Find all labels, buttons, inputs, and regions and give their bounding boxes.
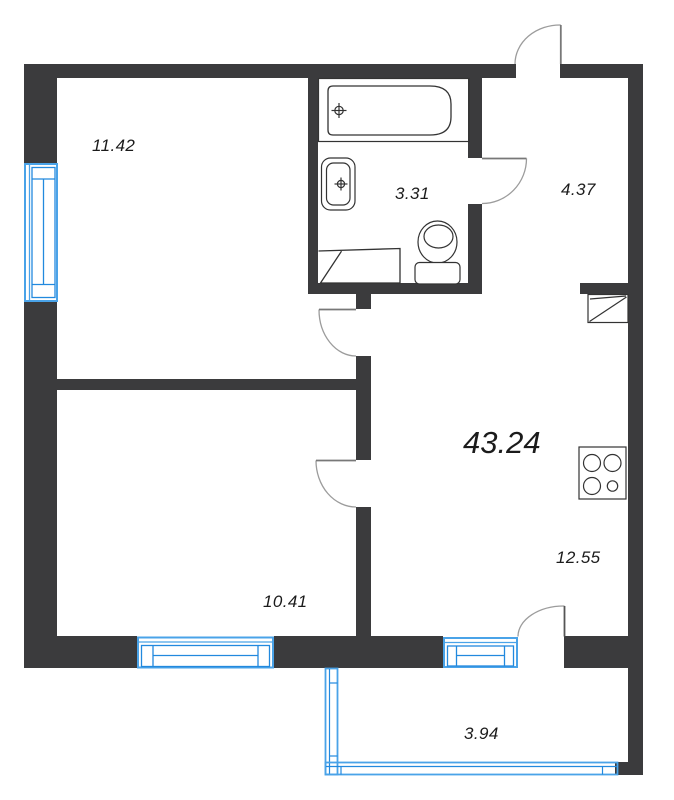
- wall-bathroom-bottom: [308, 283, 482, 294]
- floor-plan: 11.42 3.31 4.37 43.24 12.55 10.41 3.94: [0, 0, 674, 800]
- stove-burner: [584, 455, 601, 472]
- stove-burner: [584, 478, 601, 495]
- window-main-room: [444, 638, 517, 667]
- sink-inner: [327, 163, 351, 205]
- stove-body: [579, 447, 626, 499]
- bathtub: [319, 79, 470, 142]
- wall-bathroom-right-upper: [468, 64, 482, 158]
- entrance-door: [515, 25, 561, 64]
- wall-top-left: [24, 64, 516, 78]
- balcony-glazing-left: [326, 669, 338, 775]
- stove-burner: [604, 455, 621, 472]
- stove-burner: [607, 481, 617, 491]
- bathroom-area-label: 3.31: [395, 184, 430, 204]
- toilet-tank: [415, 263, 460, 285]
- toilet-bowl: [418, 221, 457, 263]
- bathtub-alcove: [319, 79, 470, 142]
- wall-bottom-mid: [274, 636, 443, 668]
- wall-bathroom-left: [308, 64, 318, 294]
- wall-bottom-right: [564, 636, 628, 668]
- bathroom-door-arc: [482, 159, 527, 204]
- wall-left-lower: [24, 302, 57, 668]
- room-top-left-door-arc: [319, 310, 356, 357]
- room-top-left-area-label: 11.42: [92, 136, 135, 156]
- room-bottom-left-door: [316, 461, 356, 508]
- plan-graphics: [0, 0, 674, 800]
- wall-vertical-low: [356, 507, 371, 636]
- sink-faucet-icon: [335, 178, 348, 191]
- room-top-left-door: [319, 310, 356, 357]
- stove: [579, 447, 626, 499]
- wall-hallway-stub: [580, 283, 628, 294]
- bathtub-basin: [328, 86, 451, 135]
- hallway-area-label: 4.37: [561, 180, 596, 200]
- bathroom-door: [482, 159, 527, 204]
- bathtub-faucet-icon: [332, 103, 347, 118]
- wall-bottom-left: [24, 636, 137, 668]
- room-bottom-left-area-label: 10.41: [263, 592, 308, 612]
- sink: [322, 158, 356, 210]
- wall-stub-below-bathroom: [356, 294, 371, 309]
- shower-tray: [319, 249, 401, 284]
- closet: [588, 295, 628, 323]
- balcony-door: [518, 606, 565, 637]
- entrance-door-arc: [515, 25, 561, 64]
- wall-balcony-corner: [615, 762, 643, 775]
- wall-right: [628, 64, 643, 775]
- toilet-bowl-inner: [424, 225, 453, 248]
- kitchen-area-label: 12.55: [556, 548, 601, 568]
- balcony-glazing-bottom: [326, 763, 618, 775]
- room-bottom-left-door-arc: [316, 461, 356, 508]
- wall-bathroom-right-lower: [468, 204, 482, 294]
- balcony-door-arc: [518, 606, 565, 637]
- toilet: [415, 221, 460, 284]
- sink-outer: [322, 158, 356, 210]
- total-area-label: 43.24: [463, 425, 541, 461]
- wall-left-upper: [24, 64, 57, 163]
- balcony-area-label: 3.94: [464, 724, 499, 744]
- window-bottom-left: [138, 638, 273, 668]
- wall-rooms-divider: [57, 379, 371, 390]
- window-left: [25, 164, 57, 301]
- wall-vertical-mid: [356, 356, 371, 460]
